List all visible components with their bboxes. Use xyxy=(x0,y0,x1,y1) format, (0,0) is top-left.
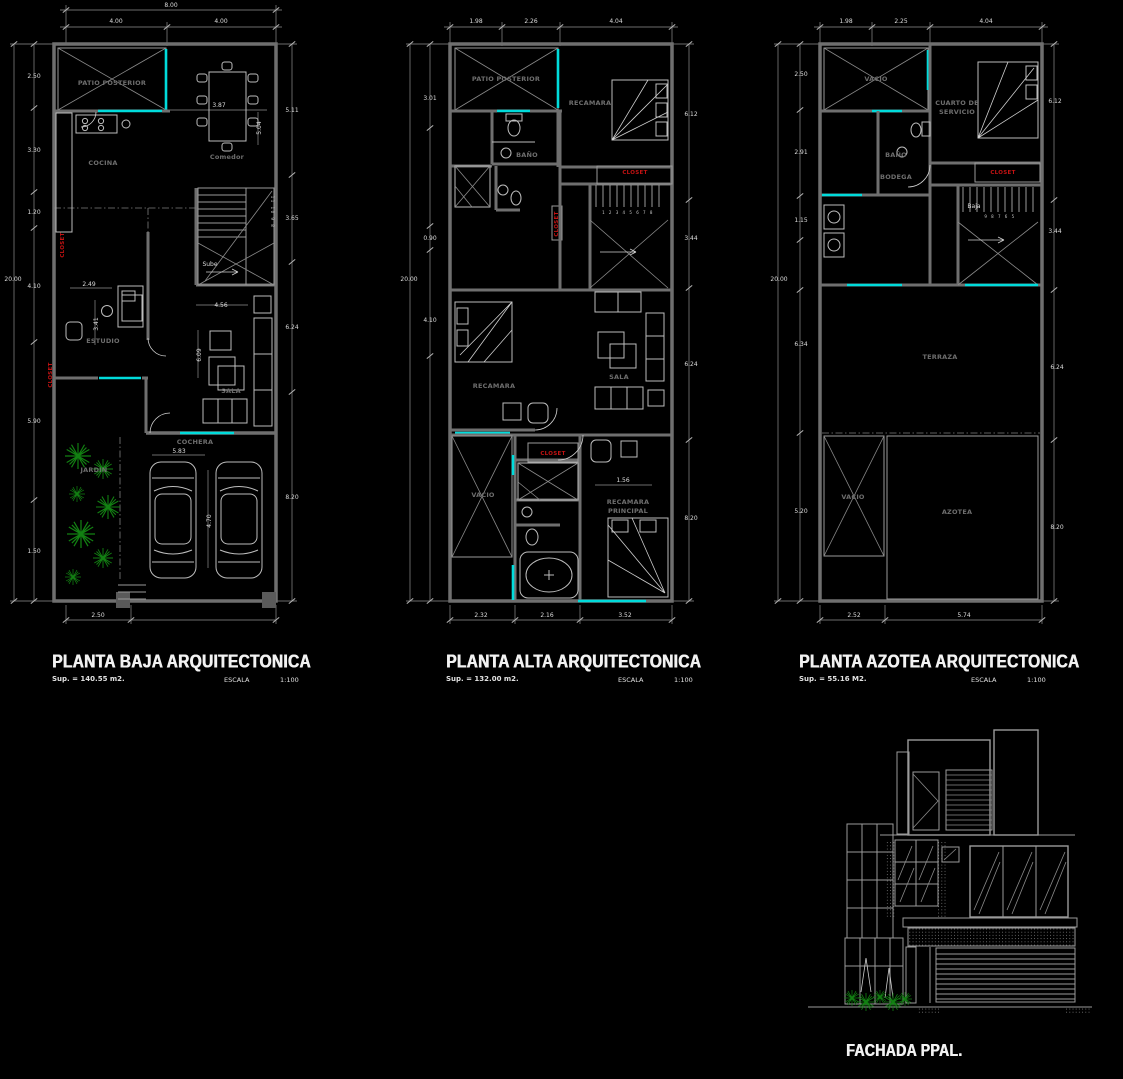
planta-baja-drawing: PATIO POSTERIORCOCINAComedorESTUDIOSALAJ… xyxy=(4,2,298,624)
stair-step-numbers: 1 2 3 4 5 6 7 8 xyxy=(602,210,654,215)
dim-label: 5.11 xyxy=(285,107,299,114)
closet-label: CLOSET xyxy=(60,232,66,257)
stair-step-numbers: 11 10 9 8 xyxy=(270,196,275,229)
room-label: BODEGA xyxy=(880,173,912,181)
plan-title: PLANTA ALTA ARQUITECTONICA xyxy=(446,652,701,673)
dim-label: 2.52 xyxy=(847,612,861,619)
dim-label: 2.26 xyxy=(524,18,538,25)
dim-label: 1.20 xyxy=(27,209,41,216)
dim-label: Sube xyxy=(202,261,217,268)
dim-label: 4.04 xyxy=(609,18,623,25)
room-label: RECAMARA xyxy=(569,99,611,107)
dim-label: 2.49 xyxy=(82,281,96,288)
dim-label: 4.10 xyxy=(27,283,41,290)
dim-label: 3.52 xyxy=(618,612,632,619)
room-label: AZOTEA xyxy=(942,508,972,516)
closet-label: CLOSET xyxy=(540,451,565,457)
room-label: BAÑO xyxy=(516,150,538,159)
planta-alta-drawing: PATIO POSTERIORRECAMARABAÑORECAMARASALAV… xyxy=(400,18,697,624)
dim-label: 1.98 xyxy=(839,18,853,25)
closet-label: CLOSET xyxy=(554,211,560,236)
room-label: ESTUDIO xyxy=(86,337,120,345)
dim-label: 6.12 xyxy=(1048,98,1062,105)
dim-label: 1.98 xyxy=(469,18,483,25)
room-label: Comedor xyxy=(210,153,245,161)
room-label: TERRAZA xyxy=(922,353,957,361)
dim-label: 5.74 xyxy=(957,612,971,619)
room-label: COCINA xyxy=(88,159,117,167)
planta-azotea-titleblock: PLANTA AZOTEA ARQUITECTONICA Sup. = 55.1… xyxy=(799,652,1088,685)
dim-label: 2.25 xyxy=(894,18,908,25)
closet-label: CLOSET xyxy=(990,170,1015,176)
dim-label: 20.00 xyxy=(400,276,417,283)
dim-label: 3.30 xyxy=(27,147,41,154)
planta-baja-titleblock: PLANTA BAJA ARQUITECTONICA Sup. = 140.55… xyxy=(52,652,319,685)
dim-label: 6.24 xyxy=(684,361,698,368)
dim-label: 6.24 xyxy=(1050,364,1064,371)
dim-label: 5.20 xyxy=(794,508,808,515)
stair-step-numbers: 9 8 7 6 5 xyxy=(984,214,1015,219)
plan-surface: Sup. = 140.55 m2. xyxy=(52,675,125,683)
dim-label: 1.56 xyxy=(616,477,630,484)
dim-label: 4.10 xyxy=(423,317,437,324)
dim-label: 4.00 xyxy=(214,18,228,25)
dim-label: 8.20 xyxy=(285,494,299,501)
plan-title: PLANTA AZOTEA ARQUITECTONICA xyxy=(799,652,1079,673)
dim-label: 0.90 xyxy=(423,235,437,242)
dim-label: 5.90 xyxy=(27,418,41,425)
closet-label: CLOSET xyxy=(622,170,647,176)
dim-label: 3.41 xyxy=(93,317,100,331)
planta-baja-text: PATIO POSTERIORCOCINAComedorESTUDIOSALAJ… xyxy=(4,2,298,619)
escala-label: ESCALA xyxy=(224,676,249,684)
room-label: JARDIN xyxy=(80,466,108,474)
room-label: CUARTO DE xyxy=(935,99,978,107)
dim-label: Baja xyxy=(967,203,980,210)
dim-label: 2.91 xyxy=(794,149,808,156)
plan-surface: Sup. = 55.16 M2. xyxy=(799,675,867,683)
planta-azotea-drawing: VACIOCUARTO DESERVICIOBAÑOBODEGATERRAZAV… xyxy=(770,18,1063,624)
room-label: BAÑO xyxy=(885,150,907,159)
dim-label: 2.50 xyxy=(91,612,105,619)
closet-label: CLOSET xyxy=(48,362,54,387)
dim-label: 1.50 xyxy=(27,548,41,555)
room-label: PATIO POSTERIOR xyxy=(472,75,540,83)
dim-label: 20.00 xyxy=(4,276,21,283)
dim-label: 3.01 xyxy=(423,95,437,102)
room-label: SERVICIO xyxy=(939,108,975,116)
dim-label: 4.00 xyxy=(109,18,123,25)
escala-value: 1:100 xyxy=(674,676,693,684)
escala-label: ESCALA xyxy=(618,676,643,684)
dim-label: 3.44 xyxy=(1048,228,1062,235)
room-label: VACIO xyxy=(864,75,888,83)
room-label: COCHERA xyxy=(177,438,213,446)
dim-label: 6.24 xyxy=(285,324,299,331)
dim-label: 5.83 xyxy=(172,448,186,455)
room-label: VACIO xyxy=(841,493,865,501)
fachada-titleblock: FACHADA PPAL. xyxy=(846,1042,966,1058)
escala-value: 1:100 xyxy=(280,676,299,684)
dim-label: 2.50 xyxy=(794,71,808,78)
plan-surface: Sup. = 132.00 m2. xyxy=(446,675,519,683)
dim-label: 6.09 xyxy=(196,348,203,362)
dim-label: 8.20 xyxy=(684,515,698,522)
room-label: PATIO POSTERIOR xyxy=(78,79,146,87)
room-label: RECAMARA xyxy=(607,498,649,506)
dim-label: 3.87 xyxy=(212,102,226,109)
escala-label: ESCALA xyxy=(971,676,996,684)
dim-label: 4.56 xyxy=(214,302,228,309)
room-label: SALA xyxy=(221,387,241,395)
room-label: SALA xyxy=(609,373,629,381)
dim-label: 3.65 xyxy=(285,215,299,222)
dim-label: 2.50 xyxy=(27,73,41,80)
fachada-drawing xyxy=(808,730,1092,1013)
dim-label: 6.34 xyxy=(794,341,808,348)
dim-label: 3.44 xyxy=(684,235,698,242)
escala-value: 1:100 xyxy=(1027,676,1046,684)
dim-label: 8.00 xyxy=(164,2,178,9)
dim-label: 1.15 xyxy=(794,217,808,224)
cad-viewport: PATIO POSTERIORCOCINAComedorESTUDIOSALAJ… xyxy=(0,0,1123,1079)
room-label: RECAMARA xyxy=(473,382,515,390)
dim-label: 6.12 xyxy=(684,111,698,118)
dim-label: 5.04 xyxy=(256,121,263,135)
planta-alta-text: PATIO POSTERIORRECAMARABAÑORECAMARASALAV… xyxy=(400,18,697,619)
facade-title: FACHADA PPAL. xyxy=(846,1042,962,1061)
dim-label: 4.70 xyxy=(206,514,213,528)
dim-label: 20.00 xyxy=(770,276,787,283)
dim-label: 4.04 xyxy=(979,18,993,25)
plan-title: PLANTA BAJA ARQUITECTONICA xyxy=(52,652,311,673)
room-label: VACIO xyxy=(471,491,495,499)
planta-azotea-text: VACIOCUARTO DESERVICIOBAÑOBODEGATERRAZAV… xyxy=(770,18,1063,619)
dim-label: 2.32 xyxy=(474,612,488,619)
planta-alta-titleblock: PLANTA ALTA ARQUITECTONICA Sup. = 132.00… xyxy=(446,652,709,685)
dim-label: 8.20 xyxy=(1050,524,1064,531)
dim-label: 2.16 xyxy=(540,612,554,619)
cad-drawing: PATIO POSTERIORCOCINAComedorESTUDIOSALAJ… xyxy=(0,0,1123,1079)
room-label: PRINCIPAL xyxy=(608,507,648,515)
